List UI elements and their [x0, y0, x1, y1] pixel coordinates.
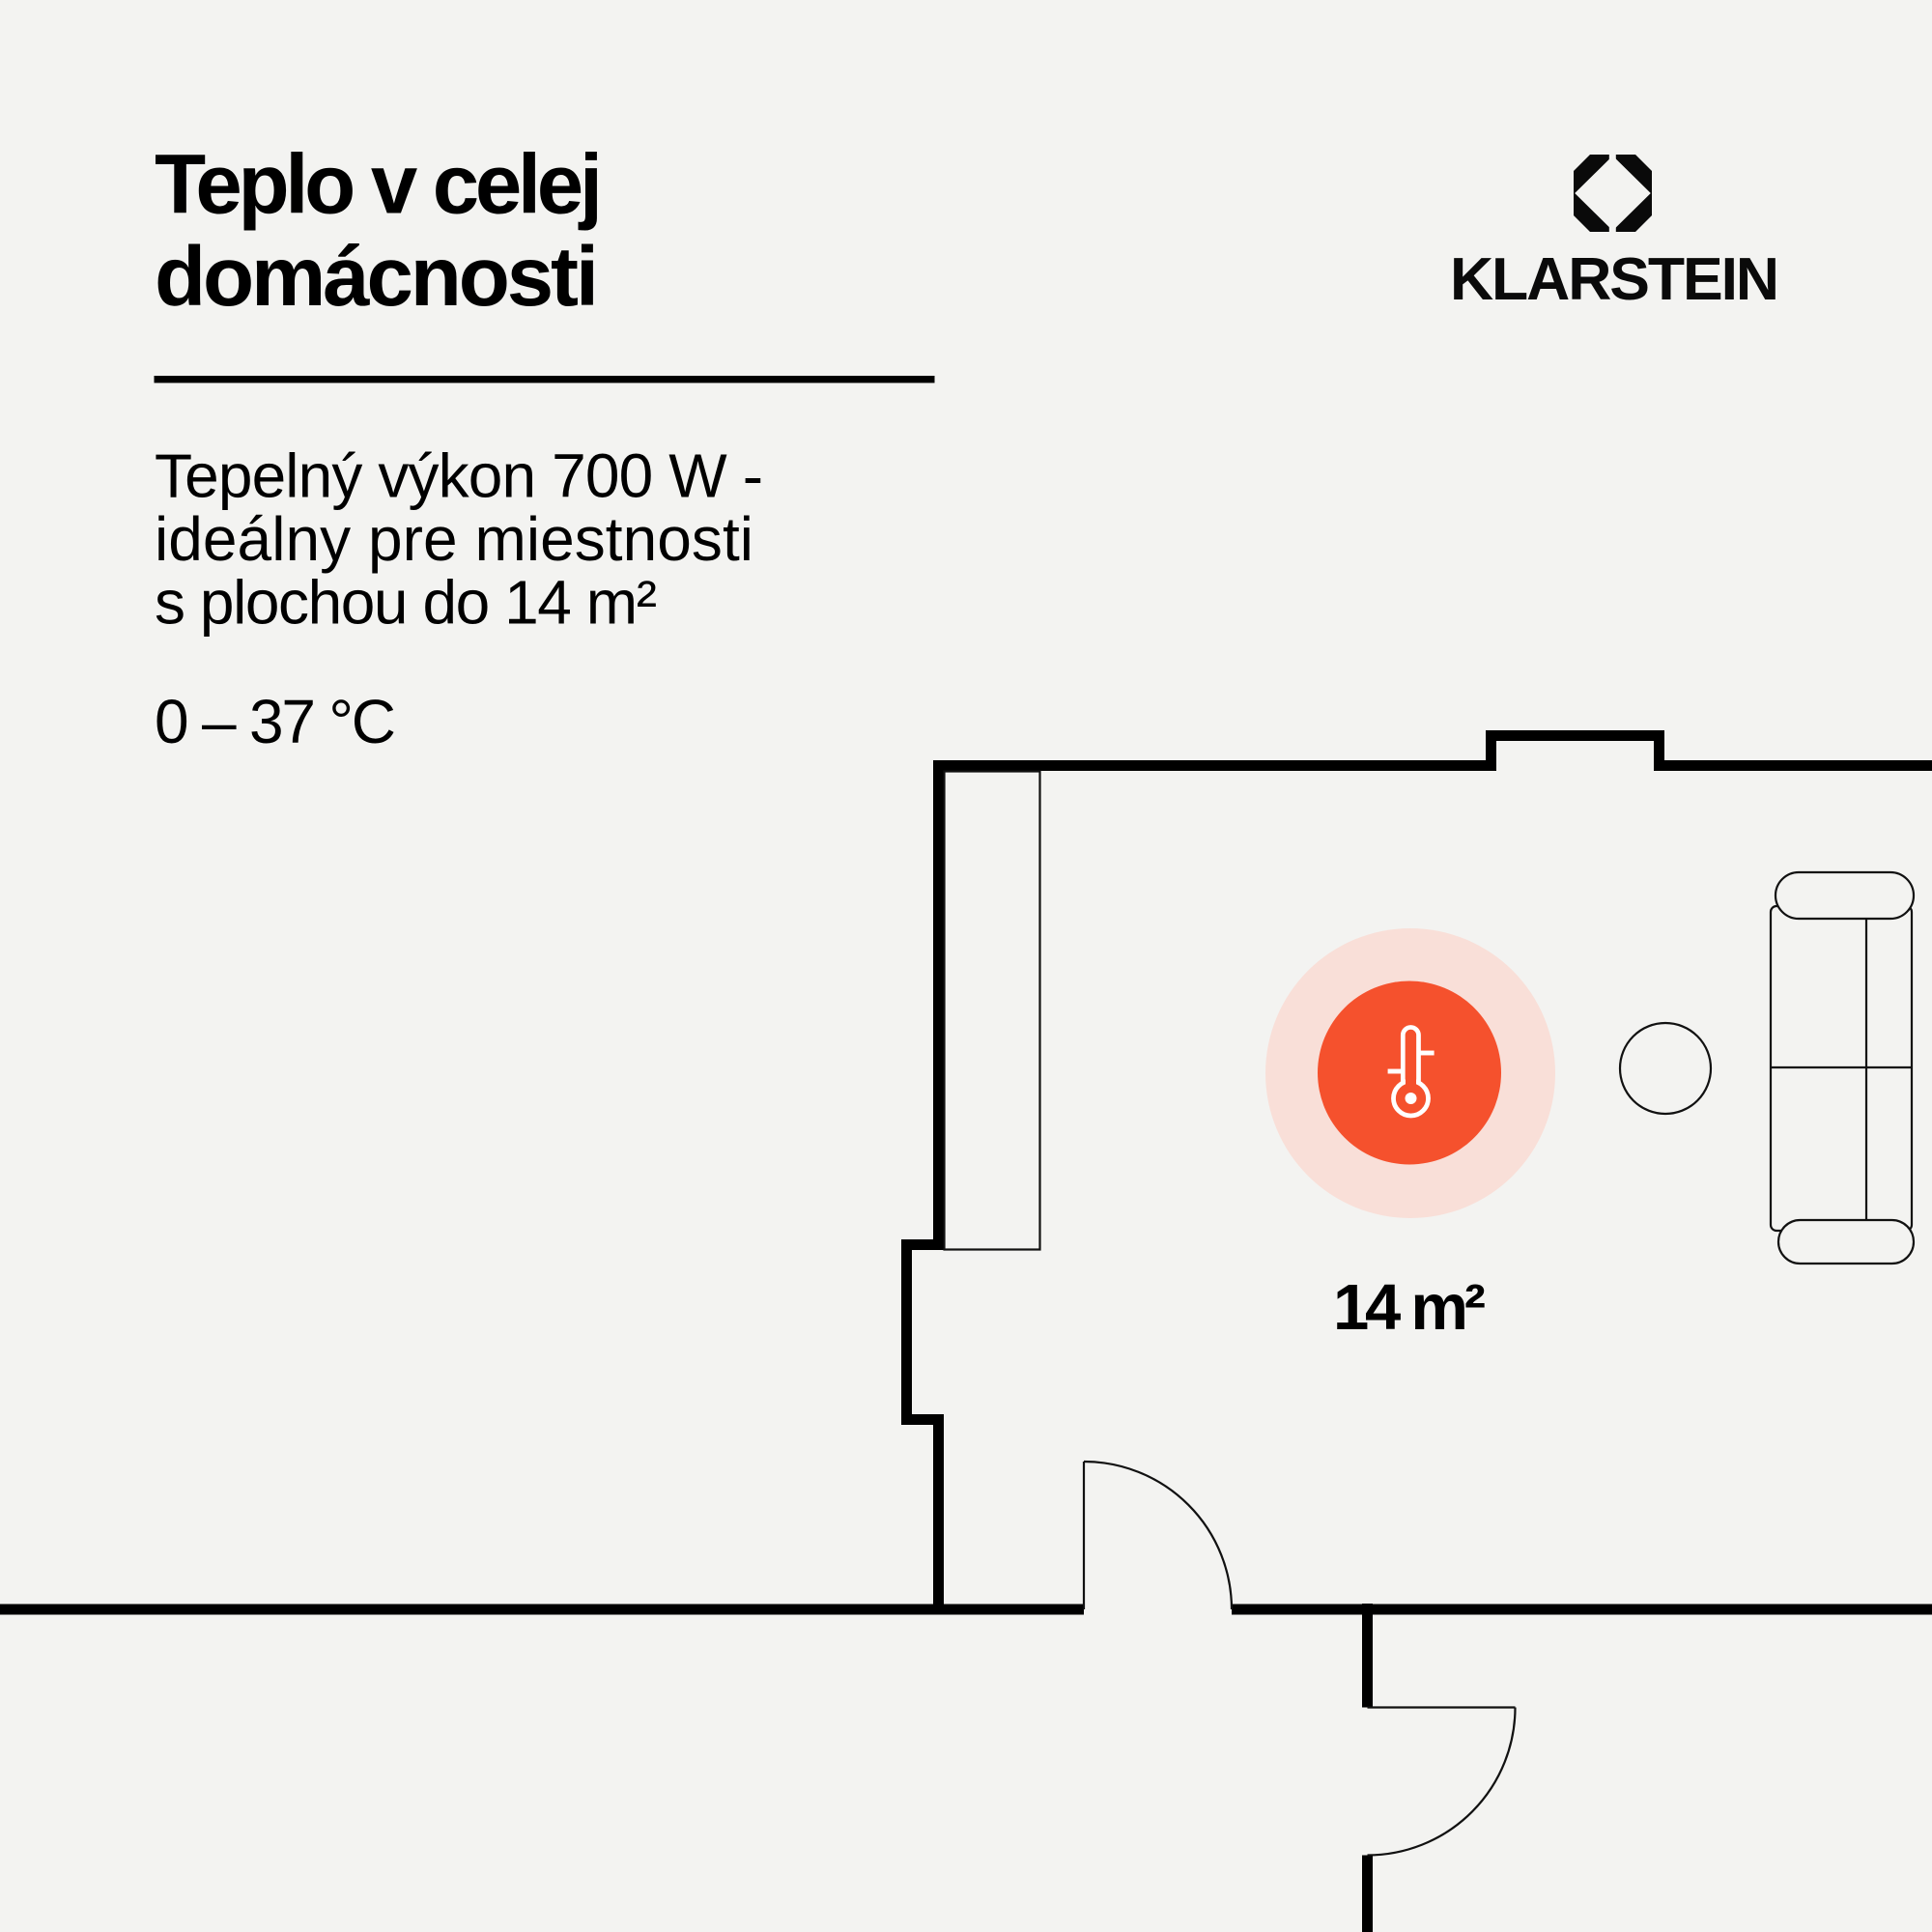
svg-text:Teplo v celej: Teplo v celej — [155, 138, 603, 232]
svg-text:14 m²: 14 m² — [1333, 1271, 1486, 1344]
svg-text:domácnosti: domácnosti — [155, 230, 599, 324]
svg-text:KLARSTEIN: KLARSTEIN — [1450, 245, 1779, 313]
svg-text:s plochou do 14 m²: s plochou do 14 m² — [155, 568, 657, 638]
svg-text:Tepelný výkon 700 W -: Tepelný výkon 700 W - — [155, 441, 763, 511]
svg-text:ideálny pre miestnosti: ideálny pre miestnosti — [155, 504, 753, 574]
svg-text:0 – 37 °C: 0 – 37 °C — [155, 687, 396, 756]
